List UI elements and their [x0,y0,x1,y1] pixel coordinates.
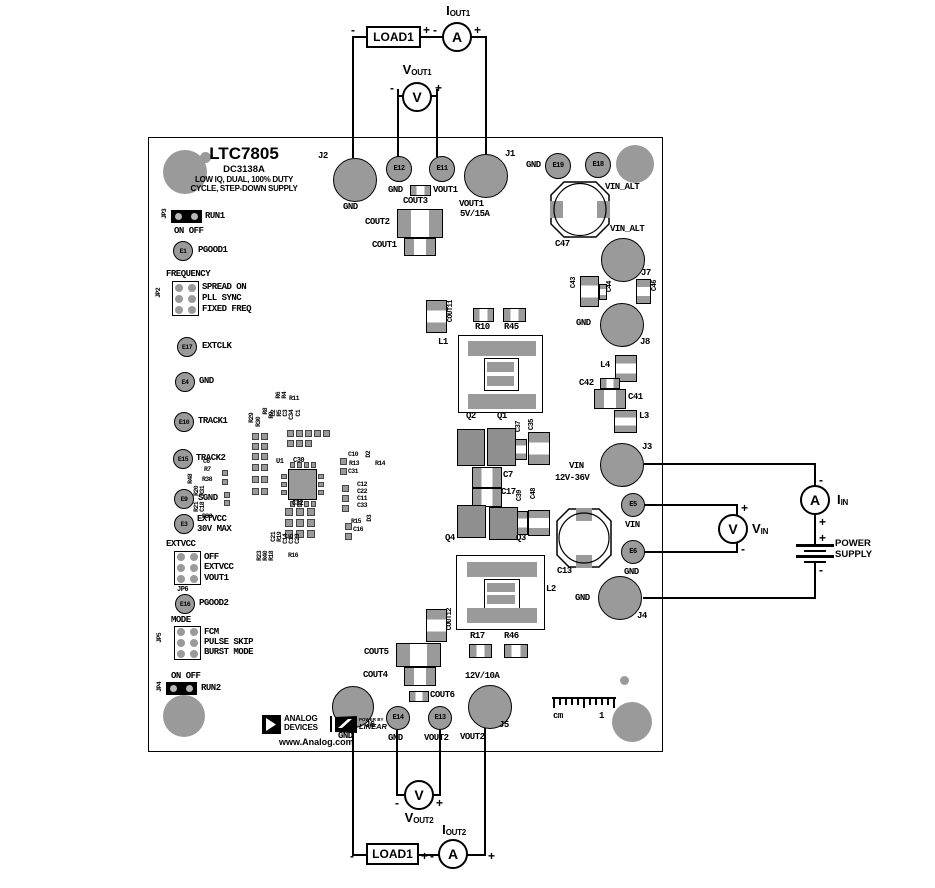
test-point-label: 30V MAX [197,525,231,534]
sign-plus: + [423,24,430,36]
sign-plus: + [741,502,748,514]
refdes-r11: R11 [289,396,299,403]
refdes-cout12: COUT12 [447,608,454,630]
jp2-jumper [172,281,199,316]
refdes-c18: C18 [200,502,207,512]
test-point-e10: E10 [174,412,194,432]
test-point-label: VIN [625,521,640,530]
smd-pad [261,464,268,471]
wire [352,36,354,158]
component-l2 [456,555,545,630]
test-point-e5: E5 [621,493,645,517]
smd-pad [304,462,309,468]
sign-minus: - [741,543,745,555]
refdes-r30: R30 [256,417,263,427]
refdes-cout3: COUT3 [403,197,428,206]
refdes-c35: C35 [529,419,536,430]
ruler-tick [601,699,603,705]
connector-j3 [600,443,644,487]
sign-plus: + [421,850,428,862]
refdes-cout6: COUT6 [430,691,455,700]
test-point-label: PGOOD1 [198,246,227,255]
sign-minus: - [395,797,399,809]
refdes-c13: C13 [557,567,572,576]
component-c41 [594,389,626,409]
sign-minus: - [430,850,434,862]
voltmeter-vin: V [718,514,748,544]
smd-pad [281,490,287,495]
ruler-tick [553,699,555,708]
component-l3 [614,410,637,433]
smd-pad [252,453,259,460]
smd-pad [296,519,304,527]
refdes-c48: C48 [531,488,538,499]
refdes-q3: Q3 [516,534,526,543]
jumper-pin [177,650,185,658]
jumper-pin [188,295,196,303]
refdes-l3: L3 [639,412,649,421]
component-c7 [472,467,502,488]
refdes-r18: R18 [269,551,276,561]
wire [736,542,738,553]
mounting-hole [616,145,654,183]
component-c35 [528,432,550,465]
wire [436,89,438,157]
component-r10 [473,308,494,322]
smd-pad [252,443,259,450]
jumper-pin [175,295,183,303]
ruler-tick [559,699,561,705]
wire [645,551,738,553]
component-q1 [487,428,516,466]
component-cout6 [409,691,429,702]
refdes-cout2: COUT2 [365,218,390,227]
connector-id: J4 [637,612,647,621]
refdes-r14: R14 [375,461,385,468]
component-c13 [556,508,612,568]
mounting-hole [163,695,205,737]
smd-pad [340,468,347,475]
smd-pad [287,430,294,437]
smd-pad [224,500,230,506]
meter-letter: V [728,521,737,537]
connector-label: GND [575,594,590,603]
sign-minus: - [819,564,823,576]
jumper-pin [188,306,196,314]
component-cout1 [404,238,436,256]
refdes-r46: R46 [504,632,519,641]
jp5-opt3: BURST MODE [204,648,253,657]
test-point-e14: E14 [386,706,410,730]
refdes-c7: C7 [503,471,513,480]
ruler-tick [571,699,573,705]
power-supply-label: POWER SUPPLY [835,538,872,561]
wire [814,514,816,544]
meter-letter: A [448,846,458,862]
wire [814,464,816,486]
component-r46 [504,644,528,658]
sign-plus: + [474,24,481,36]
connector-rating: 12V/10A [465,672,499,681]
jumper-pin [186,685,193,692]
connector-label: GND [343,203,358,212]
jumper-pin [175,213,182,220]
smd-pad [318,482,324,487]
refdes-r10: R10 [475,323,490,332]
smd-pad [296,440,303,447]
test-point-e17: E17 [177,337,197,357]
component-c48 [528,510,550,536]
test-point-label: GND [624,568,639,577]
component-cout5 [396,643,441,667]
component-c37 [515,439,527,460]
load1-bottom-label: LOAD1 [372,847,413,861]
board-title-block: LTC7805 DC3138A LOW IQ, DUAL, 100% DUTY … [176,144,312,193]
smd-pad [318,474,324,479]
component-c43 [580,276,599,307]
refdes-l2: L2 [546,585,556,594]
refdes-cout4: COUT4 [363,671,388,680]
refdes-c6: C6 [203,459,210,466]
refdes-r4: R4 [282,392,289,399]
adi-logo-icon [262,715,281,734]
test-point-e13: E13 [428,706,452,730]
ruler-tick [577,699,579,705]
connector-j7 [601,238,645,282]
test-point-e19: E19 [545,153,571,179]
jp5-id: JP5 [157,633,164,643]
jp2-opt2: PLL SYNC [202,294,241,303]
ruler-tick [583,699,585,708]
meter-letter: A [452,29,462,45]
jp5-opt2: PULSE SKIP [204,638,253,647]
refdes-r7: R7 [204,467,211,474]
jp6-id: JP6 [177,587,188,594]
test-point-label: PGOOD2 [199,599,228,608]
test-point-e4: E4 [175,372,195,392]
connector-j4 [598,576,642,620]
refdes-c23: C23 [295,534,302,544]
sign-minus: - [390,82,394,94]
ammeter-iout2: A [438,839,468,869]
via-dot [620,676,629,685]
refdes-c33: C33 [357,503,367,510]
connector-id: J3 [642,443,652,452]
refdes-c46: C46 [652,280,659,291]
meter-letter: V [414,787,423,803]
smd-pad [287,440,294,447]
sign-plus: + [819,516,826,528]
part-number: LTC7805 [176,144,312,164]
lt-logo-text: POWER BY LINEAR [359,717,387,731]
jumper-pin [177,564,185,572]
component-q3 [489,507,518,540]
refdes-c1: C1 [296,410,303,417]
tagline: CYCLE, STEP-DOWN SUPPLY [176,184,312,193]
battery-icon [796,544,834,547]
component-r17 [469,644,492,658]
refdes-c47: C47 [555,240,570,249]
wire [645,504,738,506]
connector-label: VOUT2 [460,733,485,742]
jp2-header: FREQUENCY [166,270,210,279]
smd-pad [340,458,347,465]
smd-pad [296,508,304,516]
test-point-e3: E3 [174,514,194,534]
jumper-pin [190,650,198,658]
jp4-signal: RUN2 [201,684,221,693]
smd-pad [281,482,287,487]
jumper-pin [190,564,198,572]
jumper-pin [190,575,198,583]
connector-j8 [600,303,644,347]
jp2-opt3: FIXED FREQ [202,305,251,314]
smd-pad [307,508,315,516]
sign-minus: - [351,24,355,36]
refdes-c39: C39 [517,490,524,501]
ammeter-iout1: A [442,22,472,52]
smd-pad [252,433,259,440]
refdes-c44: C44 [607,281,614,292]
ruler-mark: 1 [599,712,604,721]
refdes-r48: R48 [188,474,195,484]
refdes-u1: U1 [276,459,283,466]
refdes-r31: R31 [200,486,207,496]
battery-icon [804,550,826,552]
smd-pad [314,430,321,437]
test-point-e11: E11 [429,156,455,182]
jumper-pin [177,639,185,647]
jp4-id: JP4 [157,682,164,692]
jp6-opt1: OFF [204,553,219,562]
smd-pad [311,501,316,507]
refdes-cout1: COUT1 [372,241,397,250]
jumper-pin [190,628,198,636]
component-q2 [457,429,485,466]
wire [484,728,486,856]
refdes-d2: D2 [366,451,373,458]
test-point-e12: E12 [386,156,412,182]
component-l1 [458,335,543,413]
smd-pad [252,488,259,495]
test-point-label: VOUT1 [433,186,458,195]
component-cout12 [426,609,447,642]
component-u1-body [288,469,317,500]
jp2-opt1: SPREAD ON [202,283,246,292]
smd-pad [222,470,228,476]
refdes-c17: C17 [501,488,516,497]
refdes-r17: R17 [470,632,485,641]
meter-letter: V [412,89,421,105]
smd-pad [281,474,287,479]
lt-logo-icon [335,716,357,733]
jp5-jumper [174,626,201,660]
connector-id: J5 [499,721,509,730]
sign-plus: + [436,797,443,809]
refdes-c42: C42 [579,379,594,388]
wire [397,89,399,157]
jp4-states: ON OFF [171,672,200,681]
connector-id: J7 [641,269,651,278]
refdes-c43: C43 [571,277,578,288]
smd-pad [305,430,312,437]
sign-plus: + [488,850,495,862]
smd-pad [345,533,352,540]
component-q4 [457,505,486,538]
refdes-r13: R13 [349,461,359,468]
iin-label: IIN [837,493,848,507]
smd-pad [222,479,228,485]
sign-minus: - [433,24,437,36]
wire [352,728,354,856]
jp3-signal: RUN1 [205,212,225,221]
refdes-d3: D3 [367,515,374,522]
sign-minus: - [350,850,354,862]
refdes-c32: C32 [292,501,303,508]
test-point-label: VOUT2 [424,734,449,743]
smd-pad [304,501,309,507]
meter-letter: A [810,492,820,508]
connector-id: J2 [318,152,328,161]
ruler-tick [565,699,567,705]
refdes-cout11: COUT11 [448,300,455,322]
refdes-r15: R15 [351,519,361,526]
test-point-e15: E15 [173,449,193,469]
adi-logo-text: ANALOG DEVICES [284,715,318,733]
board-id: DC3138A [176,164,312,175]
component-c42 [600,378,620,389]
jp4-jumper [166,682,197,695]
refdes-q4: Q4 [445,534,455,543]
component-r45 [503,308,526,322]
ruler-unit: cm [553,712,563,721]
smd-pad [224,492,230,498]
test-point-e16: E16 [175,594,195,614]
smd-pad [311,462,316,468]
refdes-r38: R38 [202,477,212,484]
connector-id: J8 [640,338,650,347]
component-c46 [636,279,651,304]
refdes-q2: Q2 [466,412,476,421]
iout2-label: IOUT2 [432,823,476,837]
test-point-label: TRACK2 [196,454,225,463]
logo-divider [330,716,332,732]
jp3-id: JP3 [162,209,169,219]
refdes-c41: C41 [628,393,643,402]
smd-pad [285,508,293,516]
refdes-c37: C37 [516,421,523,432]
connector-label: GND [576,319,591,328]
smd-pad [296,430,303,437]
smd-pad [261,476,268,483]
jumper-pin [191,213,198,220]
connector-rating: 12V-36V [555,474,589,483]
smd-pad [318,490,324,495]
jp2-id: JP2 [156,288,163,298]
voltmeter-vout1: V [402,82,432,112]
smd-pad [252,464,259,471]
test-point-label: GND [199,377,214,386]
ammeter-iin: A [800,485,830,515]
test-point-label: TRACK1 [198,417,227,426]
refdes-l1: L1 [438,338,448,347]
refdes-c30: C30 [293,458,304,465]
component-cout3 [410,185,431,196]
test-point-e6: E6 [621,540,645,564]
jp5-header: MODE [171,616,191,625]
refdes-r16: R16 [288,553,298,560]
connector-rating: 5V/15A [460,210,489,219]
component-cout4 [404,667,436,686]
load1-bottom-box: LOAD1 [366,843,419,865]
refdes-c16: C16 [353,527,363,534]
refdes-c31: C31 [348,469,358,476]
battery-icon [796,555,834,558]
jumper-pin [175,284,183,292]
smd-pad [342,485,349,492]
sign-plus: + [435,82,442,94]
sign-plus: + [819,532,826,544]
smd-pad [323,430,330,437]
refdes-r45: R45 [504,323,519,332]
sign-minus: - [819,474,823,486]
smd-pad [252,476,259,483]
component-cout2 [397,209,443,238]
connector-j2 [333,158,377,202]
ruler-tick [595,699,597,705]
website-label: www.Analog.com [279,737,354,747]
wire [643,597,816,599]
refdes-q1: Q1 [497,412,507,421]
smd-pad [305,440,312,447]
smd-pad [342,505,349,512]
smd-pad [307,519,315,527]
test-point-label: GND [526,161,541,170]
refdes-l4: L4 [600,361,610,370]
jp6-opt2: EXTVCC [204,563,233,572]
smd-pad [307,530,315,538]
test-point-e18: E18 [585,152,611,178]
load1-top-label: LOAD1 [373,30,414,44]
jumper-pin [177,575,185,583]
connector-label: VIN_ALT [610,225,644,234]
ruler-tick [613,699,615,708]
connector-id: J1 [505,150,515,159]
test-point-label: GND [388,186,403,195]
jp3-states: ON OFF [174,227,203,236]
jumper-pin [177,628,185,636]
test-point-e1: E1 [173,241,193,261]
jumper-pin [175,306,183,314]
demo-board-setup-diagram: LOAD1 A IOUT1 V VOUT1 - + - + - + LOAD1 … [0,0,935,888]
jp6-header: EXTVCC [166,540,195,549]
jp3-jumper [171,210,202,223]
smd-pad [261,488,268,495]
load1-top-box: LOAD1 [366,26,421,48]
component-c47 [550,181,610,238]
jumper-pin [190,553,198,561]
test-point-label: VIN_ALT [605,183,639,192]
tagline: LOW IQ, DUAL, 100% DUTY [176,175,312,184]
vin-label: VIN [752,522,768,536]
jumper-pin [188,284,196,292]
test-point-label: EXTCLK [202,342,231,351]
connector-label: VIN [569,462,584,471]
jp6-opt3: VOUT1 [204,574,229,583]
wire [352,854,366,856]
ruler-tick [589,699,591,705]
refdes-c10: C10 [348,452,358,459]
